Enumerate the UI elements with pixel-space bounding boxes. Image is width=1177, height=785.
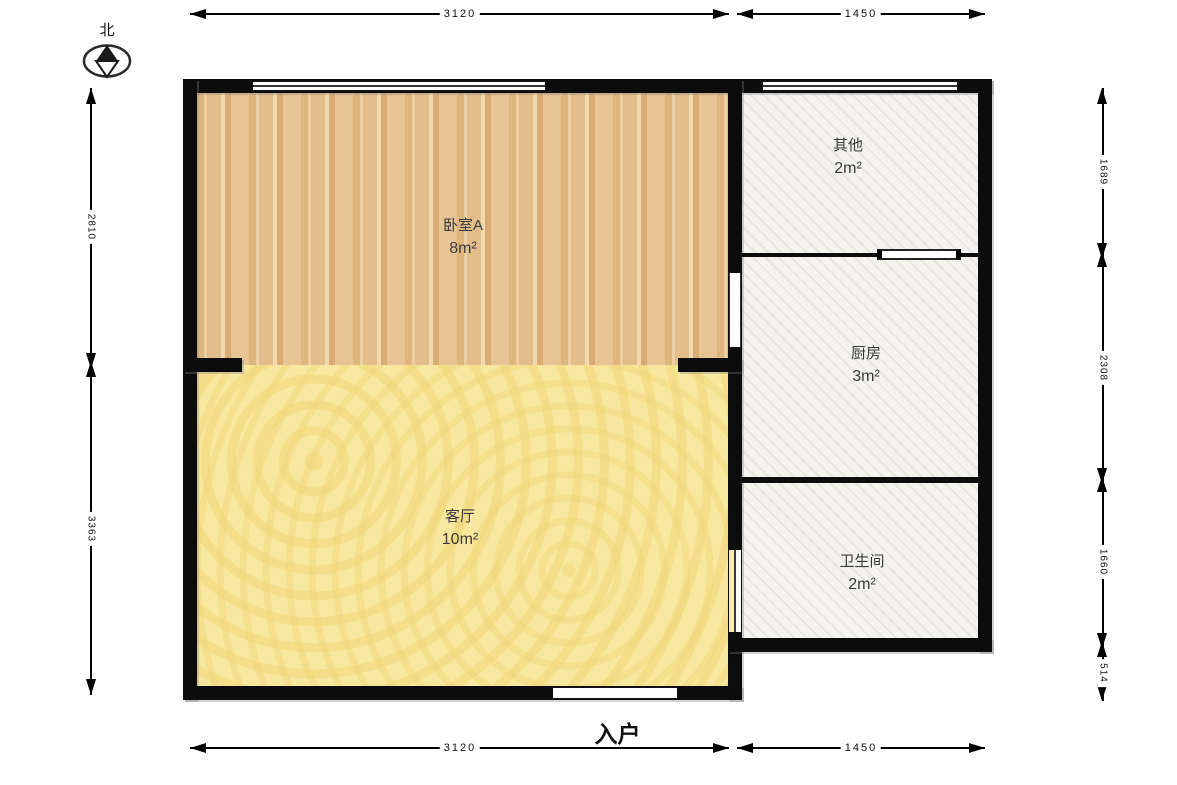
room-label-bathroom: 卫生间 2m² bbox=[802, 550, 922, 596]
dim-label-left-2: 3363 bbox=[86, 512, 97, 546]
dim-arrow-icon bbox=[86, 679, 96, 695]
dim-label-right-3: 1660 bbox=[1098, 545, 1109, 579]
room-name: 客厅 bbox=[380, 505, 540, 528]
door-leaf-line bbox=[734, 550, 736, 632]
entrance-door-opening bbox=[553, 686, 677, 700]
room-area: 2m² bbox=[802, 573, 922, 596]
floor-plan-canvas: 北 卧室A 8m² 客厅 10m² 其他 2m² 厨房 bbox=[0, 0, 1177, 785]
dim-label-right-2: 2308 bbox=[1098, 351, 1109, 385]
dim-arrow-icon bbox=[1097, 88, 1107, 104]
dim-arrow-icon bbox=[190, 743, 206, 753]
dim-label-bottom-1: 3120 bbox=[440, 742, 480, 754]
dim-label-bottom-2: 1450 bbox=[841, 742, 881, 754]
window-bedroom-top bbox=[253, 80, 545, 92]
dim-label-right-1: 1689 bbox=[1098, 155, 1109, 189]
room-area: 3m² bbox=[806, 365, 926, 388]
wall-left-outer bbox=[183, 79, 197, 700]
dim-arrow-icon bbox=[86, 361, 96, 377]
dim-arrow-icon bbox=[1097, 685, 1107, 701]
dim-arrow-icon bbox=[737, 743, 753, 753]
wall-stub-bedroom-living-right bbox=[678, 358, 742, 372]
dim-arrow-icon bbox=[737, 9, 753, 19]
entrance-label: 入户 bbox=[560, 715, 675, 749]
compass-icon bbox=[80, 40, 134, 82]
dim-label-right-4: 514 bbox=[1098, 659, 1109, 687]
wall-bathroom-bottom bbox=[728, 638, 992, 652]
dim-line-left bbox=[90, 88, 92, 695]
dim-arrow-icon bbox=[969, 743, 985, 753]
door-opening-bedroom-kitchen bbox=[729, 273, 741, 347]
dim-arrow-icon bbox=[1097, 641, 1107, 657]
wall-divider-kitchen-bathroom bbox=[742, 477, 978, 483]
room-label-kitchen: 厨房 3m² bbox=[806, 342, 926, 388]
window-other-kitchen-pass bbox=[877, 249, 961, 260]
dim-arrow-icon bbox=[969, 9, 985, 19]
dim-label-top-2: 1450 bbox=[841, 8, 881, 20]
wall-right-outer bbox=[978, 79, 992, 652]
dim-arrow-icon bbox=[86, 88, 96, 104]
dim-arrow-icon bbox=[1097, 476, 1107, 492]
room-name: 厨房 bbox=[806, 342, 926, 365]
room-label-living-room: 客厅 10m² bbox=[380, 505, 540, 551]
north-label: 北 bbox=[80, 22, 134, 40]
room-label-bedroom-a: 卧室A 8m² bbox=[383, 214, 543, 260]
room-label-other: 其他 2m² bbox=[788, 134, 908, 180]
room-area: 2m² bbox=[788, 157, 908, 180]
room-area: 8m² bbox=[383, 237, 543, 260]
dim-arrow-icon bbox=[713, 9, 729, 19]
dim-label-left-1: 2810 bbox=[86, 210, 97, 244]
dim-label-top-1: 3120 bbox=[440, 8, 480, 20]
room-name: 卫生间 bbox=[802, 550, 922, 573]
dim-arrow-icon bbox=[713, 743, 729, 753]
compass: 北 bbox=[80, 22, 134, 87]
room-name: 卧室A bbox=[383, 214, 543, 237]
room-area: 10m² bbox=[380, 528, 540, 551]
dim-arrow-icon bbox=[1097, 251, 1107, 267]
wall-stub-bedroom-living-left bbox=[183, 358, 242, 372]
room-name: 其他 bbox=[788, 134, 908, 157]
dim-arrow-icon bbox=[190, 9, 206, 19]
window-other-top bbox=[763, 80, 957, 92]
